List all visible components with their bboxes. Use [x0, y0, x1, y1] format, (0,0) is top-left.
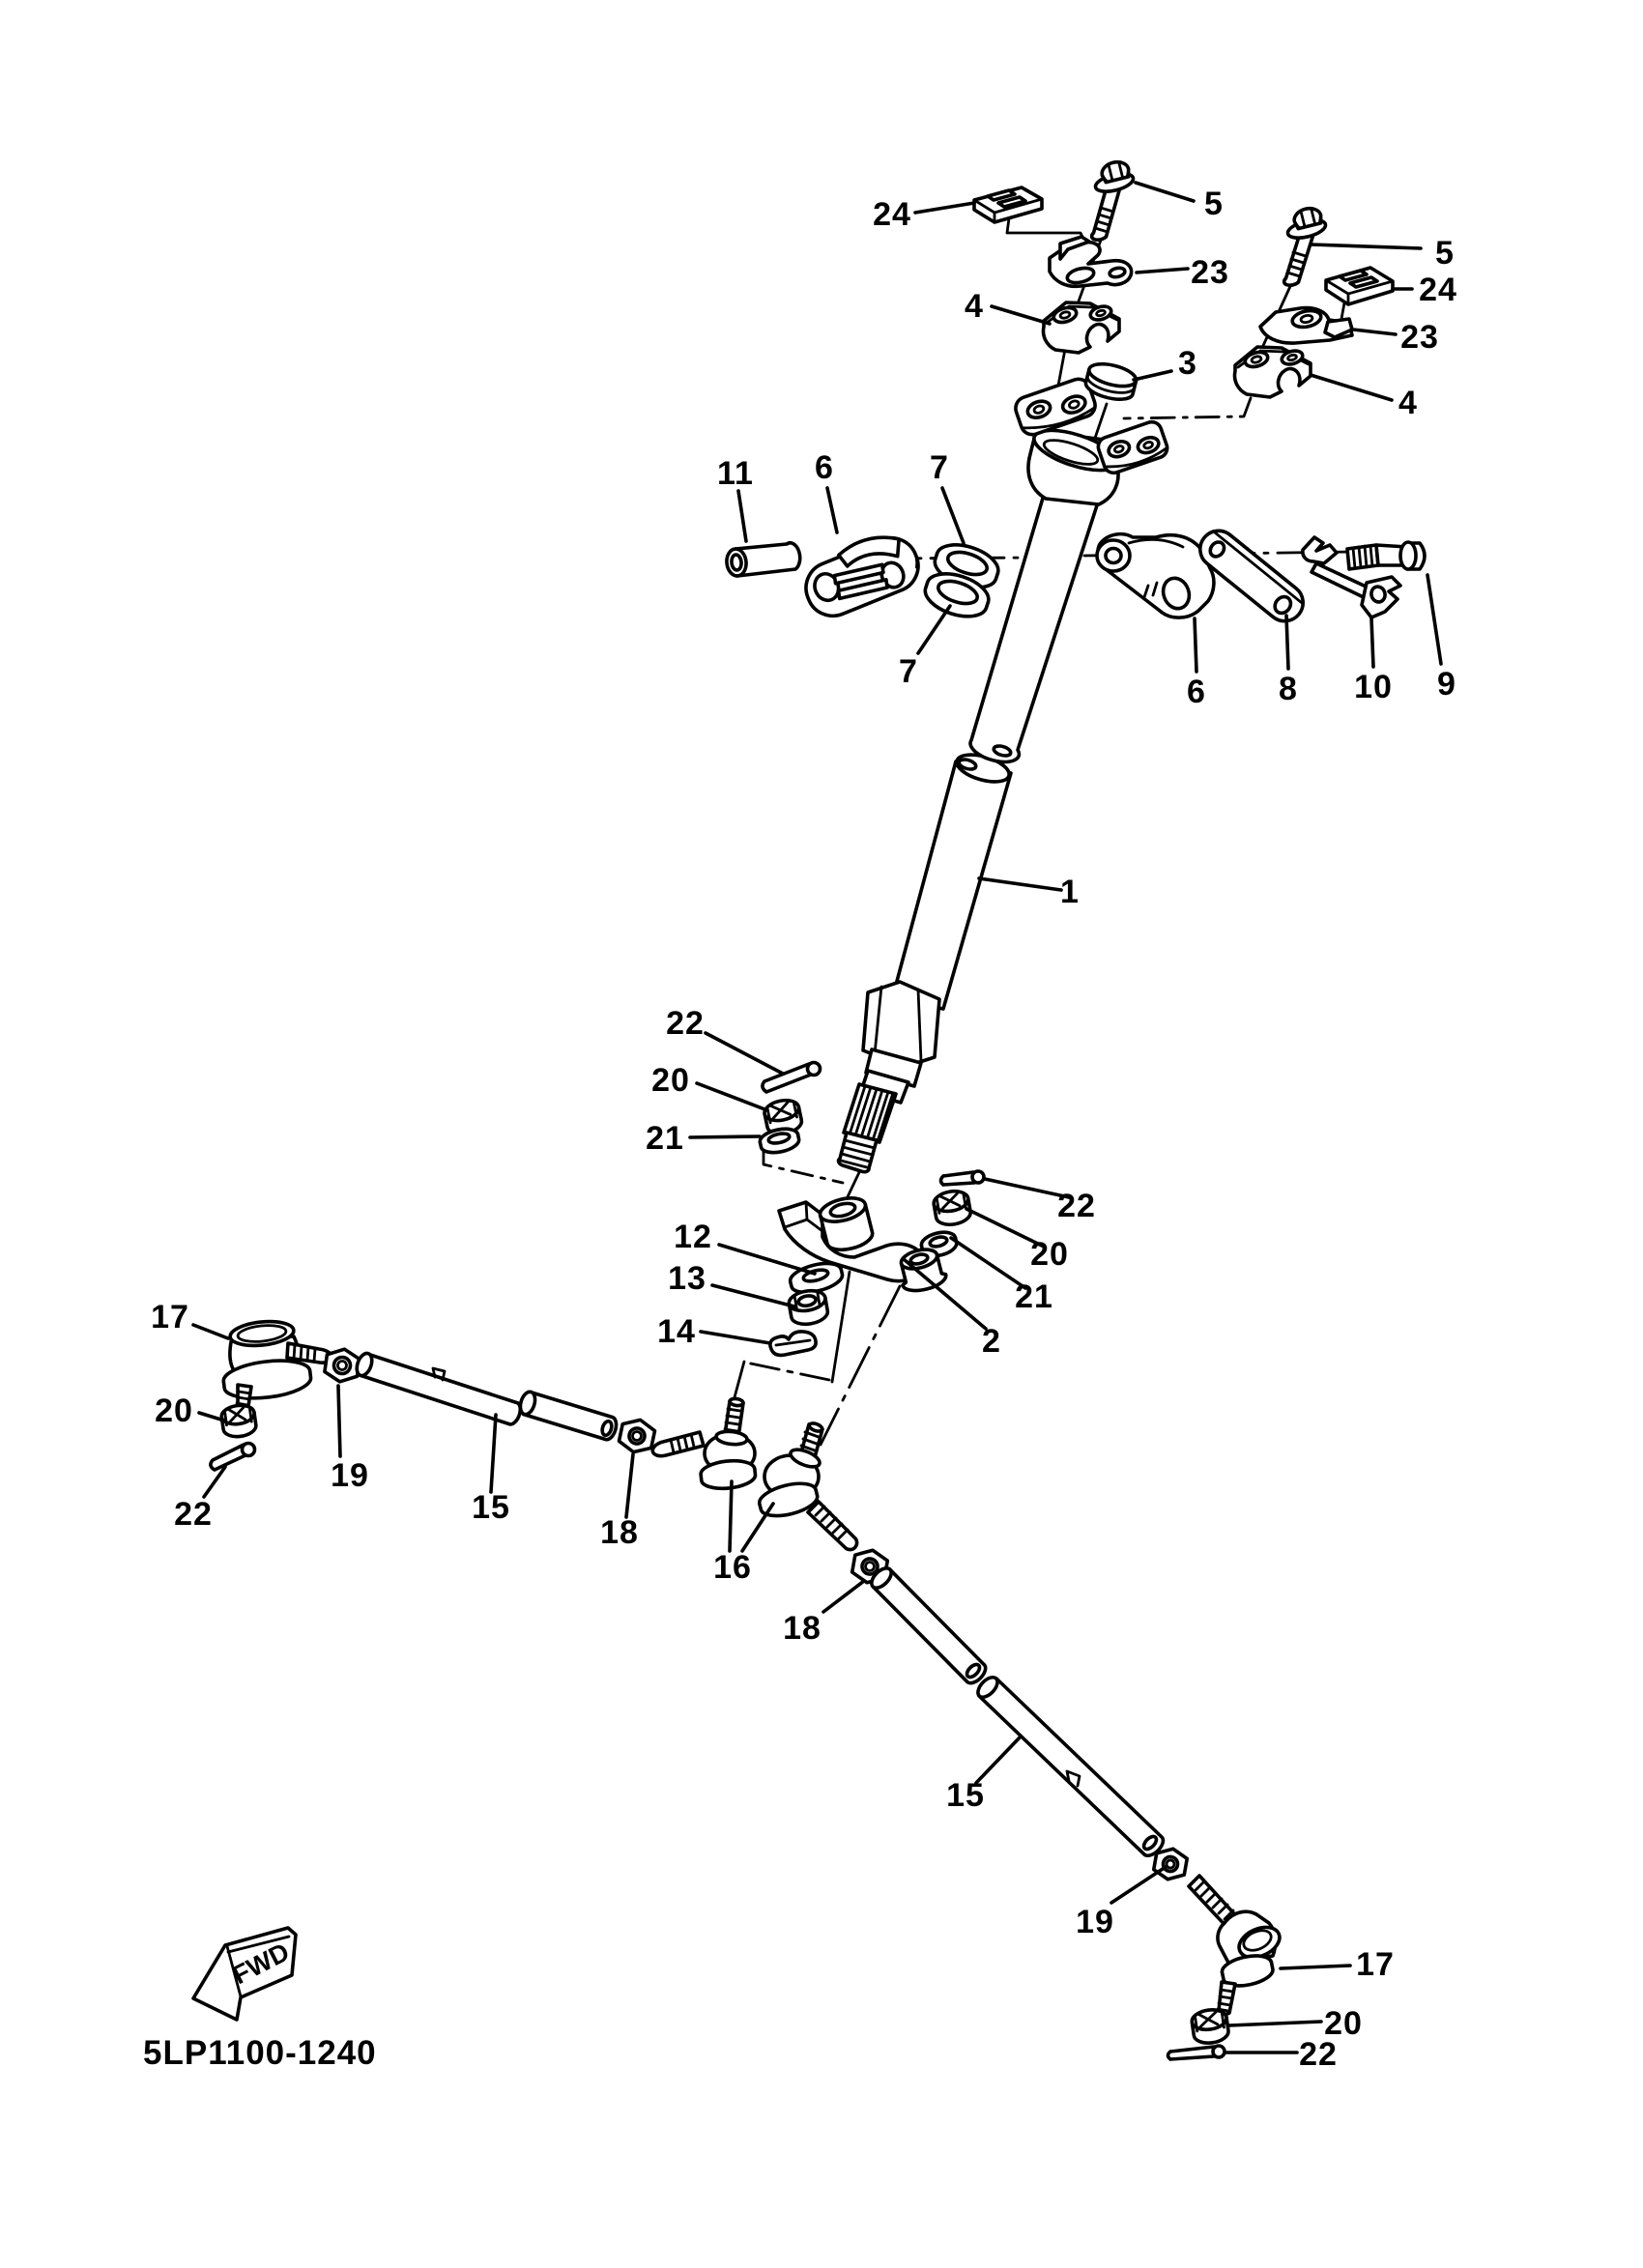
- svg-text:15: 15: [946, 1777, 985, 1814]
- svg-text:20: 20: [155, 1392, 193, 1429]
- svg-text:6: 6: [815, 449, 834, 486]
- svg-text:15: 15: [472, 1489, 510, 1526]
- svg-text:16: 16: [713, 1549, 752, 1586]
- svg-text:24: 24: [873, 196, 911, 233]
- svg-text:5: 5: [1204, 186, 1224, 222]
- svg-text:17: 17: [151, 1299, 189, 1335]
- svg-text:17: 17: [1356, 1946, 1395, 1983]
- svg-text:22: 22: [666, 1005, 705, 1042]
- svg-text:5: 5: [1435, 235, 1455, 272]
- svg-text:21: 21: [646, 1120, 684, 1157]
- svg-text:6: 6: [1187, 674, 1206, 710]
- svg-text:11: 11: [717, 455, 754, 492]
- svg-text:20: 20: [651, 1062, 690, 1099]
- svg-text:7: 7: [899, 653, 918, 690]
- svg-text:4: 4: [965, 288, 984, 325]
- svg-text:20: 20: [1030, 1236, 1069, 1273]
- svg-text:22: 22: [174, 1496, 213, 1533]
- svg-text:13: 13: [668, 1260, 706, 1297]
- svg-text:5LP1100-1240: 5LP1100-1240: [143, 2034, 377, 2072]
- svg-text:22: 22: [1057, 1188, 1096, 1224]
- svg-text:23: 23: [1400, 319, 1439, 356]
- svg-text:1: 1: [1060, 874, 1080, 910]
- svg-text:4: 4: [1398, 385, 1418, 421]
- svg-text:19: 19: [331, 1457, 369, 1494]
- svg-text:2: 2: [982, 1323, 1001, 1360]
- svg-text:22: 22: [1299, 2036, 1338, 2073]
- svg-text:7: 7: [930, 449, 949, 486]
- svg-text:10: 10: [1354, 669, 1393, 705]
- svg-text:18: 18: [783, 1610, 821, 1647]
- svg-text:23: 23: [1191, 254, 1229, 291]
- svg-text:19: 19: [1076, 1904, 1114, 1940]
- svg-text:12: 12: [674, 1219, 712, 1255]
- svg-text:18: 18: [600, 1514, 639, 1551]
- svg-text:3: 3: [1178, 345, 1197, 382]
- svg-text:21: 21: [1015, 1278, 1053, 1315]
- svg-text:8: 8: [1279, 671, 1298, 707]
- svg-text:9: 9: [1437, 666, 1456, 703]
- svg-text:24: 24: [1419, 272, 1457, 308]
- svg-text:14: 14: [657, 1313, 696, 1350]
